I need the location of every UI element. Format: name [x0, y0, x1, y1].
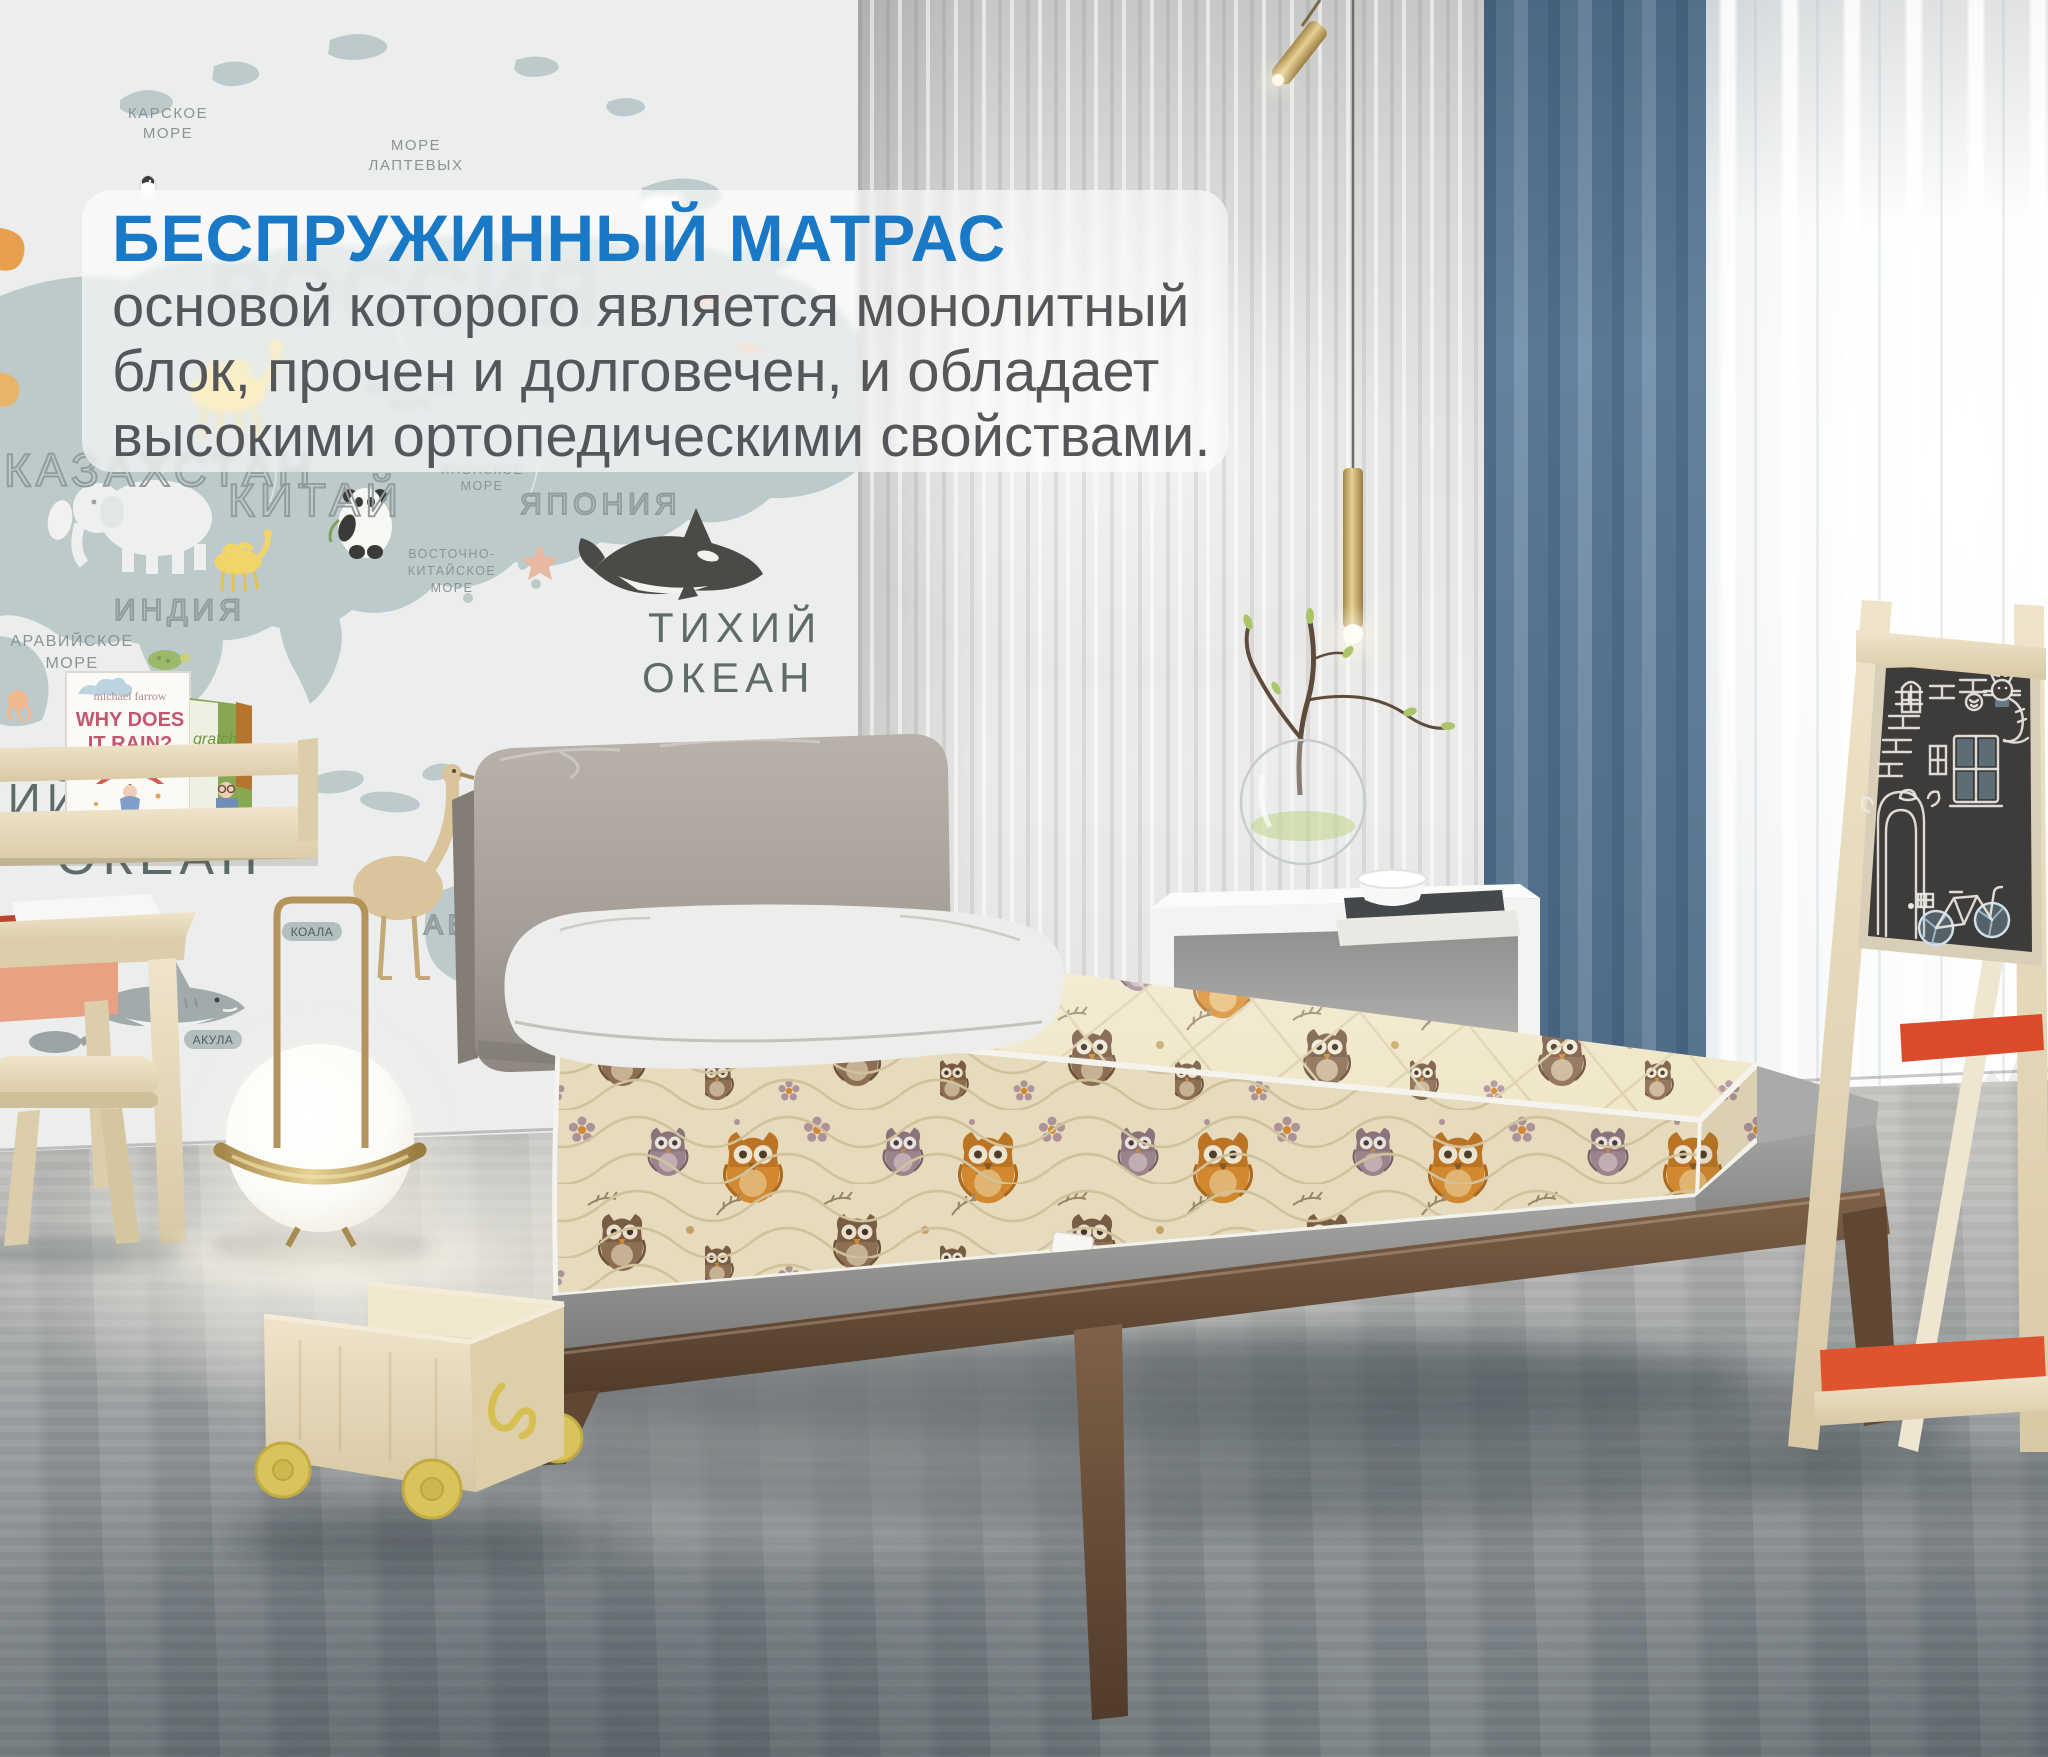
map-tag-koala: КОАЛА: [291, 925, 334, 939]
marketing-text-panel: БЕСПРУЖИННЫЙ МАТРАС основой которого явл…: [82, 190, 1228, 472]
map-label-india: ИНДИЯ: [114, 594, 246, 627]
headboard-side: [452, 790, 478, 1064]
svg-text:МОРЕ: МОРЕ: [461, 479, 504, 493]
book-title-line1: WHY DOES: [76, 709, 185, 731]
whale-illustration: [29, 1031, 93, 1053]
svg-text:МОРЕ: МОРЕ: [45, 655, 98, 672]
shelf-front-rail: [0, 742, 318, 782]
bed: [410, 734, 1950, 1720]
white-bowl: [1358, 870, 1426, 906]
panel-line-3: высокими ортопедическими свойствами.: [112, 404, 1228, 469]
map-label-east-china-sea: ВОСТОЧНО-: [408, 547, 496, 561]
shelf-board: [0, 806, 318, 866]
kids-bedroom-product-photo: РОССИЯ КАЗАХСТАН КИТАЙ ЯПОНИЯ ИНДИЯ АВСТ…: [0, 0, 2048, 1757]
toy-cart: [228, 1284, 608, 1572]
map-label-kara-sea: КАРСКОЕ: [128, 105, 208, 122]
map-label-china: КИТАЙ: [228, 474, 403, 526]
wall-bookshelf: michael farrow WHY DOES IT RAIN? gratch …: [0, 672, 318, 866]
lamp-glass-sphere: [226, 1044, 414, 1232]
svg-text:МОРЕ: МОРЕ: [431, 581, 474, 595]
map-label-pacific-2: ОКЕАН: [642, 654, 816, 701]
book-author: michael farrow: [94, 689, 167, 703]
chalkboard-easel: [1725, 600, 2048, 1504]
svg-text:МОРЕ: МОРЕ: [143, 125, 193, 142]
fox-illustration: [0, 228, 25, 271]
map-label-arabian-sea: АРАВИЙСКОЕ: [10, 631, 133, 650]
panel-line-2: блок, прочен и долговечен, и обладает: [112, 339, 1228, 404]
map-label-japan: ЯПОНИЯ: [520, 488, 681, 521]
cart-wheel-front-left: [256, 1443, 310, 1497]
pendant-tube-light: [1343, 624, 1363, 644]
pendant-spot-lamp: [1266, 0, 1330, 92]
svg-text:ЛАПТЕВЫХ: ЛАПТЕВЫХ: [369, 157, 464, 174]
svg-text:КИТАЙСКОЕ: КИТАЙСКОЕ: [408, 563, 497, 578]
cart-wheel-front-center: [403, 1460, 461, 1518]
chalkboard: [1868, 664, 2032, 952]
stool-leg-left: [4, 1110, 40, 1246]
pendant-tube-body: [1343, 468, 1363, 628]
panel-title: БЕСПРУЖИННЫЙ МАТРАС: [112, 202, 1228, 274]
map-label-laptev-sea: МОРЕ: [391, 137, 441, 154]
pendant-spot-light: [1272, 74, 1284, 86]
pendant-tube-lamp: [1331, 0, 1375, 658]
shelf-end-bracket: [298, 738, 318, 842]
panel-line-1: основой которого является монолитный: [112, 274, 1228, 339]
cart-shadow: [228, 1508, 608, 1572]
map-label-pacific-1: ТИХИЙ: [648, 603, 822, 651]
